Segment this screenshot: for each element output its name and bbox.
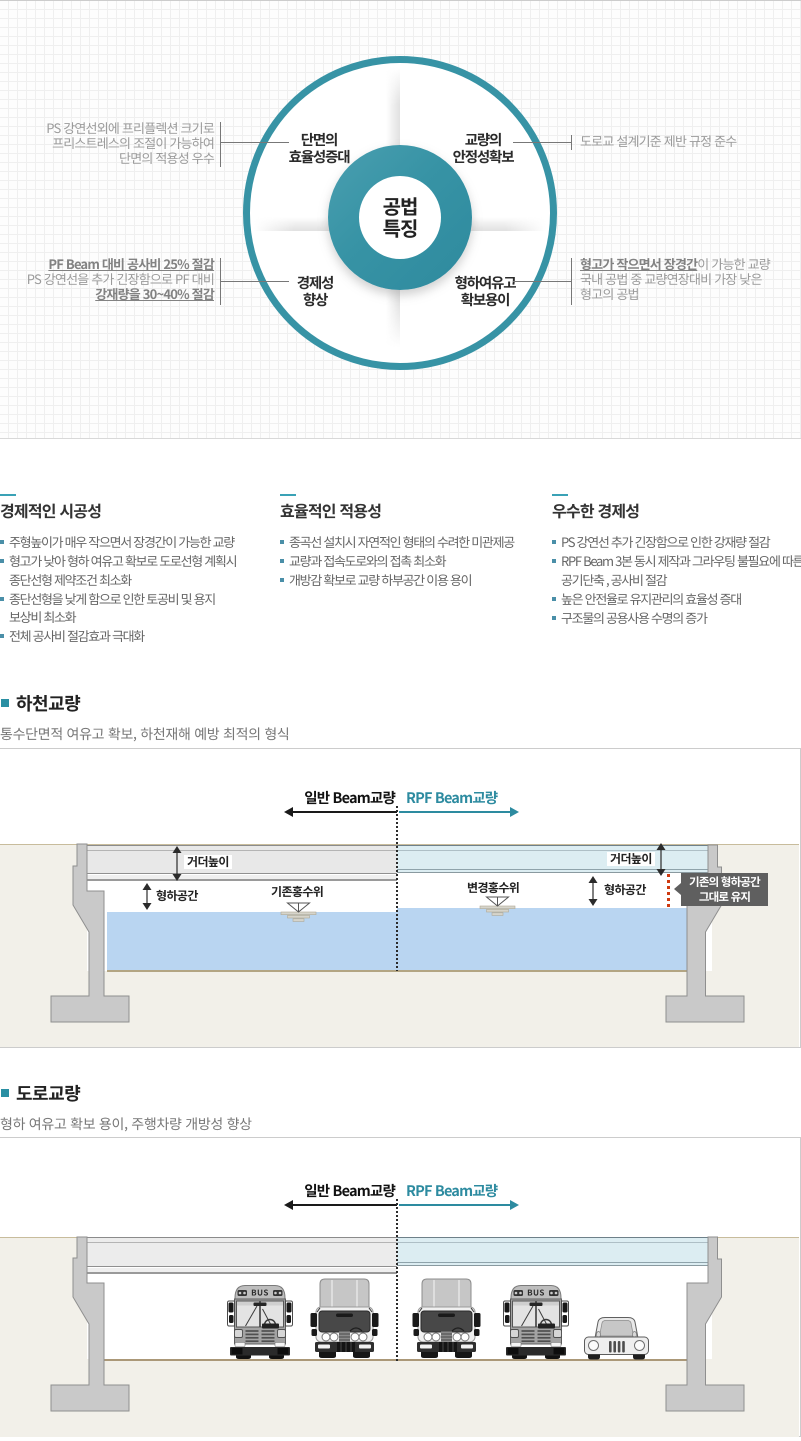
svg-text:BUS: BUS <box>527 1288 545 1299</box>
svg-text:BUS: BUS <box>251 1288 269 1299</box>
